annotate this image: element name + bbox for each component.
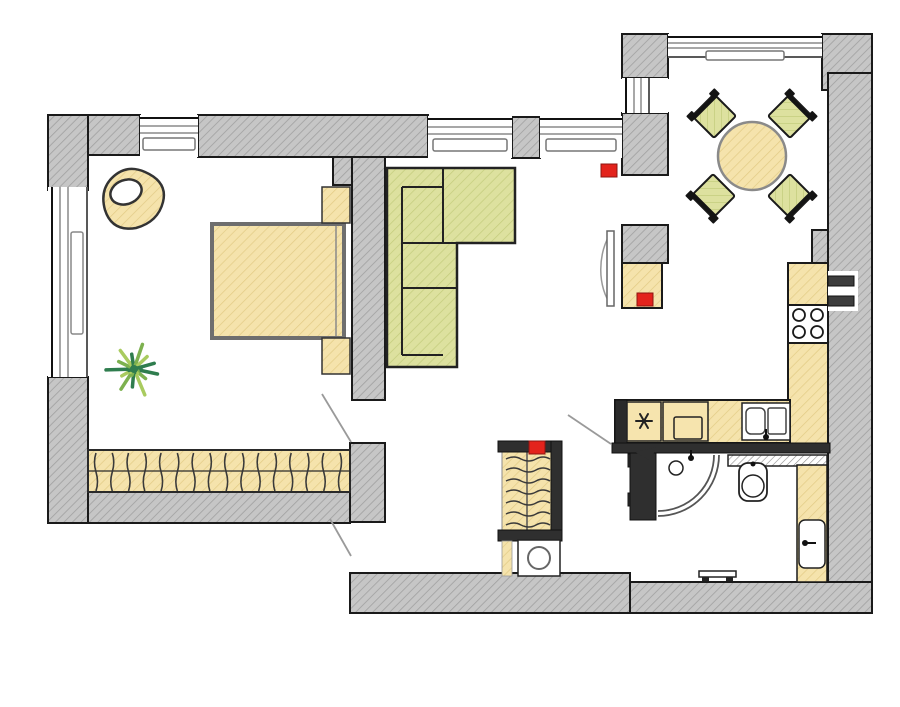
wall-right-main (828, 73, 872, 613)
red-marker (529, 441, 545, 454)
entry-door-leaf (330, 519, 351, 556)
wall-bottom-hallway (350, 573, 630, 613)
toilet-bowl (742, 475, 764, 497)
wall-dining-left-bottom-pier (622, 113, 668, 175)
window-sill (546, 139, 616, 151)
wall-left-bottom-pier (48, 377, 88, 523)
potted-plant (106, 344, 157, 394)
wall-top-main (198, 115, 428, 157)
dishwasher-unit (627, 402, 661, 441)
wall-left-top-pier (48, 115, 88, 190)
window-dining-top (668, 34, 822, 60)
bathroom-wall-left (630, 453, 656, 520)
window-sill (143, 138, 195, 150)
red-marker (601, 164, 617, 177)
living-room-furniture (387, 168, 515, 367)
corner-washbasin (658, 450, 719, 516)
bench-leg (702, 577, 709, 581)
sofa-outline (387, 168, 515, 367)
window-living-top-b (540, 116, 622, 158)
bench-leg (726, 577, 733, 581)
radiator-bar (828, 276, 854, 286)
basin-faucet (688, 455, 694, 461)
stove-burner (811, 309, 823, 321)
radiator (71, 232, 83, 334)
wall-radiator (828, 271, 858, 311)
wall-bottom-bathroom (630, 582, 872, 613)
bathtub (797, 465, 827, 582)
wall-bedroom-door-jamb (350, 443, 385, 522)
nightstand-bottom (322, 338, 350, 374)
armchair (103, 169, 164, 229)
plant-center (130, 365, 138, 373)
wall-bedroom-right (352, 157, 385, 400)
floor-plan-canvas (0, 0, 900, 707)
dining-table (718, 122, 786, 190)
bedroom-door-leaf (322, 394, 351, 442)
window-dining-left (622, 78, 668, 113)
kitchen-counter-right (788, 263, 828, 450)
radiator-bar (828, 296, 854, 306)
sink-bowl-right (768, 408, 786, 434)
red-marker (637, 293, 653, 306)
washing-machine (502, 540, 560, 576)
sink-faucet (763, 434, 769, 440)
tall-cabinet (622, 225, 668, 263)
sink-bowl-left (746, 408, 765, 434)
dining-furniture (685, 88, 818, 224)
basin-front-arc-outer (658, 455, 719, 516)
window-living-top-a (428, 116, 512, 158)
wall-living-top-pier (512, 117, 540, 158)
nightstand-top (322, 187, 350, 223)
window-sill (706, 51, 784, 60)
stove (788, 305, 828, 343)
hallway-furniture (498, 441, 650, 576)
hall-closet (498, 441, 562, 541)
oven-unit (663, 402, 708, 441)
washer-drum (528, 547, 550, 569)
wall-bedroom-bottom (48, 492, 350, 523)
bathroom-door-leaf (568, 415, 611, 444)
closet-wall-right (551, 441, 562, 541)
wardrobe (88, 450, 350, 492)
window-bedroom-top (140, 115, 198, 157)
bench-top (699, 571, 736, 577)
wall-dining-left-top-pier (622, 34, 668, 78)
double-bed (212, 224, 344, 338)
stove-burner (811, 326, 823, 338)
stove-burner (793, 326, 805, 338)
kitchen-sink (742, 403, 790, 440)
corner-sofa (387, 168, 515, 367)
fridge-door-leaf (607, 231, 614, 306)
window-sill (433, 139, 507, 151)
stove-burner (793, 309, 805, 321)
toilet-flush (751, 462, 756, 467)
bath-bench (699, 571, 736, 581)
wall-right-step (812, 230, 828, 263)
floor-plan-svg (0, 0, 900, 707)
toilet (739, 462, 767, 502)
window-left-balcony (48, 187, 88, 377)
basin-front-arc (658, 455, 714, 511)
basin-drain (669, 461, 683, 475)
window-opening (622, 78, 668, 113)
bathroom (612, 443, 830, 582)
bedroom-furniture (88, 169, 350, 492)
washer-side-panel (502, 541, 512, 576)
wall-bedroom-corner-step (333, 157, 352, 185)
counter-end-cap (615, 400, 627, 443)
